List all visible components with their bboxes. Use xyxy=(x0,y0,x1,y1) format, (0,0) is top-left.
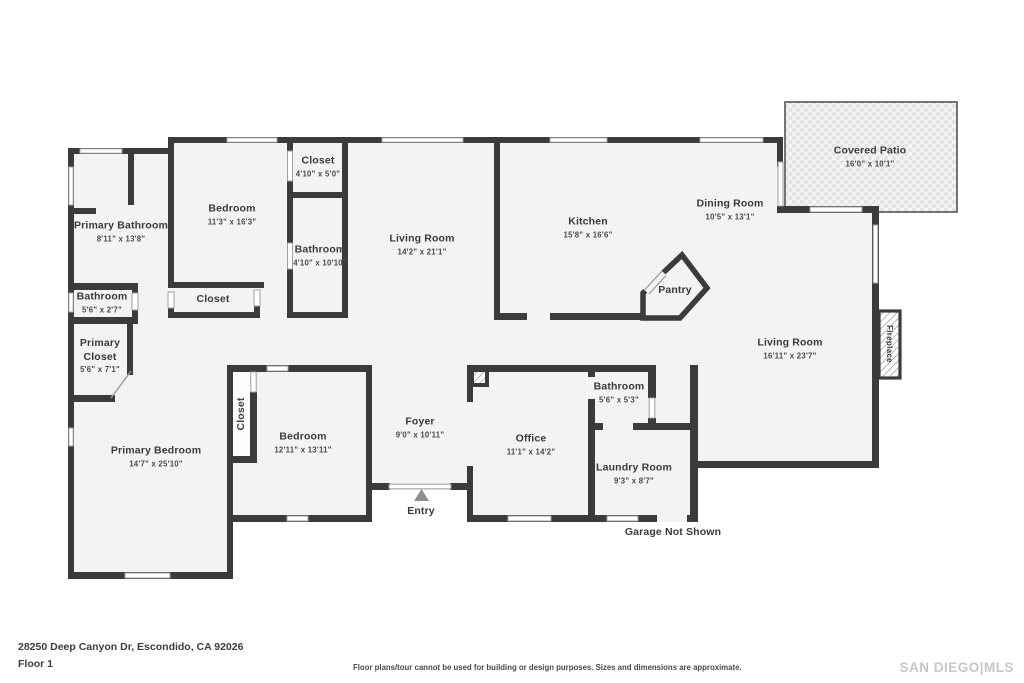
mls-brand-logo: SAN DIEGO|MLS xyxy=(899,660,1014,675)
footer-disclaimer: Floor plans/tour cannot be used for buil… xyxy=(353,663,742,672)
label-living-room-right: Living Room16'11" x 23'7" xyxy=(757,337,822,362)
label-primary-bathroom: Primary Bathroom8'11" x 13'8" xyxy=(74,220,168,245)
label-fireplace: Fireplace xyxy=(884,325,894,363)
label-primary-closet: Primary Closet5'6" x 7'1" xyxy=(74,337,126,375)
floor-plan: Primary Bathroom8'11" x 13'8"Bedroom11'3… xyxy=(0,0,1024,683)
label-bathroom-small: Bathroom5'6" x 2'7" xyxy=(77,291,128,316)
footer-address: 28250 Deep Canyon Dr, Escondido, CA 9202… xyxy=(18,641,243,653)
label-closet-top: Closet4'10" x 5'0" xyxy=(296,155,340,180)
label-bathroom-office: Bathroom5'6" x 5'3" xyxy=(594,381,645,406)
label-office: Office11'1" x 14'2" xyxy=(507,433,556,458)
label-bedroom-1: Bedroom11'3" x 16'3" xyxy=(208,203,257,228)
label-entry: Entry xyxy=(407,505,435,519)
office-utility-box xyxy=(472,370,487,385)
label-bathroom-hall: Bathroom4'10" x 10'10" xyxy=(293,244,347,269)
label-pantry: Pantry xyxy=(658,284,692,298)
label-closet-vertical: Closet xyxy=(235,398,249,431)
label-primary-bedroom: Primary Bedroom14'7" x 25'10" xyxy=(111,445,201,470)
label-dining-room: Dining Room10'5" x 13'1" xyxy=(697,198,764,223)
label-bedroom-2: Bedroom12'11" x 13'11" xyxy=(274,431,331,456)
label-living-room-center: Living Room14'2" x 21'1" xyxy=(389,233,454,258)
label-covered-patio: Covered Patio16'0" x 10'1" xyxy=(834,145,907,170)
entry-arrow-icon xyxy=(414,489,429,501)
label-laundry-room: Laundry Room9'3" x 8'7" xyxy=(596,462,672,487)
footer-floor-label: Floor 1 xyxy=(18,658,53,670)
label-foyer: Foyer9'0" x 10'11" xyxy=(396,416,445,441)
label-kitchen: Kitchen15'8" x 16'6" xyxy=(563,216,612,241)
floor-plan-drawing xyxy=(0,0,1024,683)
label-garage-note: Garage Not Shown xyxy=(625,526,721,540)
label-closet-mid: Closet xyxy=(197,293,230,307)
